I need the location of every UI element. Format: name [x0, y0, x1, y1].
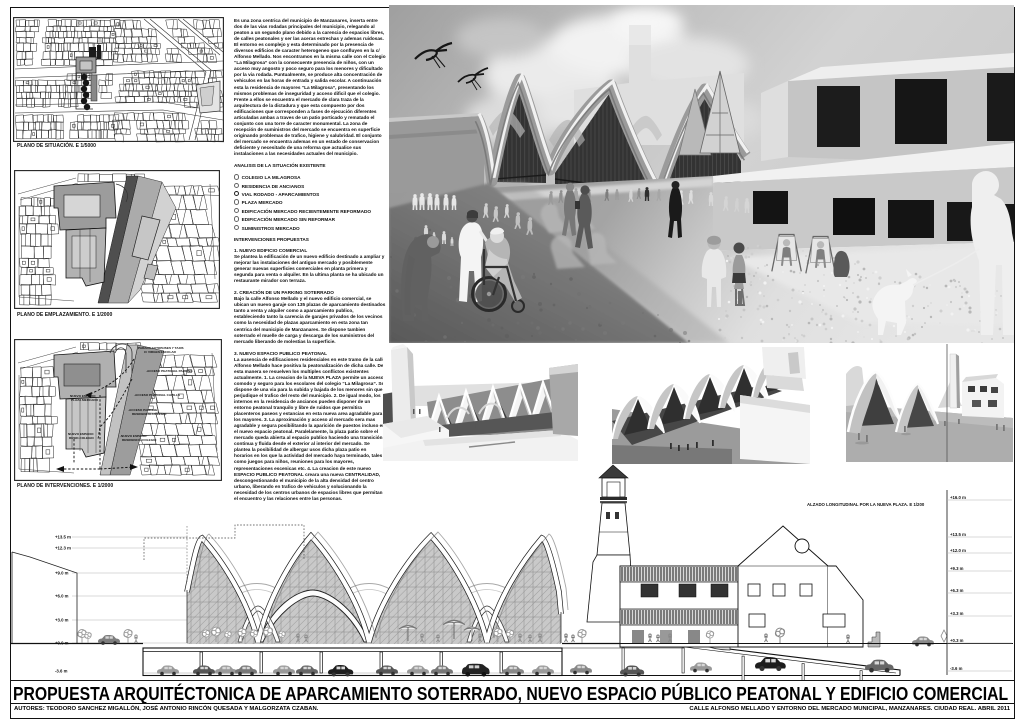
svg-text:+12.0 m: +12.0 m	[950, 548, 966, 553]
svg-text:-3.6 m: -3.6 m	[950, 666, 963, 671]
svg-text:PLAZA MERCADO: PLAZA MERCADO	[71, 398, 99, 402]
svg-text:+9.3 m: +9.3 m	[950, 566, 964, 571]
svg-text:+16.0 m: +16.0 m	[950, 495, 966, 500]
svg-text:+13.5 m: +13.5 m	[55, 535, 71, 540]
svg-text:+3.3 m: +3.3 m	[950, 611, 964, 616]
svg-text:RESID-COLEGIO: RESID-COLEGIO	[69, 436, 94, 440]
svg-text:+9.0 m: +9.0 m	[55, 571, 69, 576]
svg-text:+0.3 m: +0.3 m	[950, 638, 964, 643]
svg-text:RESIDENCIA-COLEGIO: RESIDENCIA-COLEGIO	[122, 438, 157, 442]
svg-text:+13.5 m: +13.5 m	[950, 532, 966, 537]
svg-text:C/ VIRGEN ESCOLAR: C/ VIRGEN ESCOLAR	[144, 350, 177, 354]
svg-text:+3.0 m: +3.0 m	[55, 618, 69, 623]
svg-text:-3.6 m: -3.6 m	[55, 669, 68, 674]
svg-text:+6.0 m: +6.0 m	[55, 594, 69, 599]
svg-text:-ACCESO PEATONAL CAPILLA: -ACCESO PEATONAL CAPILLA	[134, 393, 181, 397]
svg-text:RESIDENCIA-COLEGIO: RESIDENCIA-COLEGIO	[132, 412, 167, 416]
svg-text:ALZADO LONGITUDINAL POR LA NUE: ALZADO LONGITUDINAL POR LA NUEVA PLAZA. …	[807, 502, 925, 507]
svg-text:+6.3 m: +6.3 m	[950, 588, 964, 593]
svg-text:+12.3 m: +12.3 m	[55, 546, 71, 551]
svg-text:-ACCESO PEATONAL PARKING: -ACCESO PEATONAL PARKING	[146, 369, 193, 373]
